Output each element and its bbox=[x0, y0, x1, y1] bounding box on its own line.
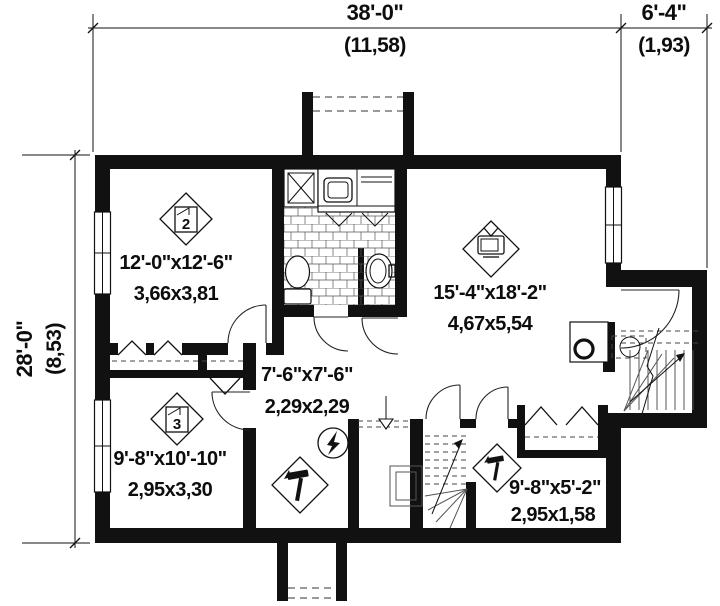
bedroom2-door-arc bbox=[228, 305, 266, 343]
bedroom3-door-arc bbox=[212, 392, 250, 430]
utility-door-arc bbox=[621, 290, 679, 348]
hall-size-ft: 7'-6"x7'-6" bbox=[261, 364, 353, 386]
landing-door-arc bbox=[476, 387, 508, 419]
side-staircase bbox=[621, 328, 698, 414]
dim-height-m: (8,53) bbox=[43, 323, 66, 375]
window-bedroom2 bbox=[95, 212, 111, 294]
entry-stoop-top bbox=[302, 92, 414, 158]
stair-door-arc bbox=[426, 385, 460, 419]
bifold-door-icon bbox=[566, 407, 598, 425]
floor-plan-drawing: 38'-0" (11,58) 6'-4" (1,93) 28'-0" (8,53… bbox=[0, 0, 720, 606]
bifold-door-icon bbox=[118, 341, 146, 355]
bedroom2-size-m: 3,66x3,81 bbox=[134, 283, 219, 305]
bedroom3-badge: 3 bbox=[173, 416, 181, 433]
bedroom3-size-m: 2,95x3,30 bbox=[128, 479, 213, 501]
shower-icon bbox=[284, 169, 318, 207]
hall-living-door-arc bbox=[362, 318, 398, 354]
storage-size-m: 2,95x1,58 bbox=[511, 504, 596, 526]
hammer-icon bbox=[284, 469, 309, 501]
bedroom2-size-ft: 12'-0"x12'-6" bbox=[119, 252, 232, 274]
bedroom3-symbol: 3 bbox=[151, 393, 203, 445]
hammer-icon bbox=[484, 455, 504, 480]
left-dimension: 28'-0" (8,53) bbox=[12, 150, 90, 548]
toilet-icon bbox=[284, 256, 311, 304]
living-symbol bbox=[463, 221, 519, 277]
window-bedroom3 bbox=[95, 400, 111, 492]
storage-size-ft: 9'-8"x5'-2" bbox=[509, 477, 601, 499]
dim-width-main-m: (11,58) bbox=[344, 34, 406, 57]
dim-width-main-ft: 38'-0" bbox=[347, 0, 404, 25]
floor-drain-icon bbox=[379, 396, 393, 429]
dim-width-ext-ft: 6'-4" bbox=[642, 0, 687, 25]
living-size-m: 4,67x5,54 bbox=[448, 313, 534, 335]
tv-icon bbox=[478, 228, 504, 257]
bathroom bbox=[284, 169, 395, 351]
main-staircase bbox=[390, 436, 467, 528]
bifold-door-icon bbox=[525, 407, 557, 425]
window-living bbox=[606, 187, 622, 263]
bed-2-icon: 2 bbox=[175, 207, 197, 233]
bathroom-door-arc bbox=[314, 317, 348, 351]
basement-window-well bbox=[277, 540, 347, 601]
workshop-symbol bbox=[272, 457, 328, 513]
laundry-tub-icon bbox=[570, 322, 608, 362]
bifold-door-icon bbox=[154, 341, 182, 355]
living-size-ft: 15'-4"x18'-2" bbox=[433, 282, 546, 304]
lightning-bolt-icon bbox=[327, 431, 340, 455]
floor-plan-canvas: 38'-0" (11,58) 6'-4" (1,93) 28'-0" (8,53… bbox=[0, 0, 720, 606]
bedroom2-symbol: 2 bbox=[160, 193, 212, 245]
bed-3-icon: 3 bbox=[166, 407, 188, 433]
dim-height-ft: 28'-0" bbox=[12, 321, 37, 378]
stair-break-line bbox=[642, 328, 659, 414]
electrical-panel-icon bbox=[318, 428, 348, 458]
dim-width-ext-m: (1,93) bbox=[638, 34, 690, 57]
bedroom2-badge: 2 bbox=[182, 216, 190, 233]
hall-size-m: 2,29x2,29 bbox=[265, 396, 350, 418]
stair-direction-arrow bbox=[432, 443, 461, 514]
bedroom3-size-ft: 9'-8"x10'-10" bbox=[113, 448, 226, 470]
